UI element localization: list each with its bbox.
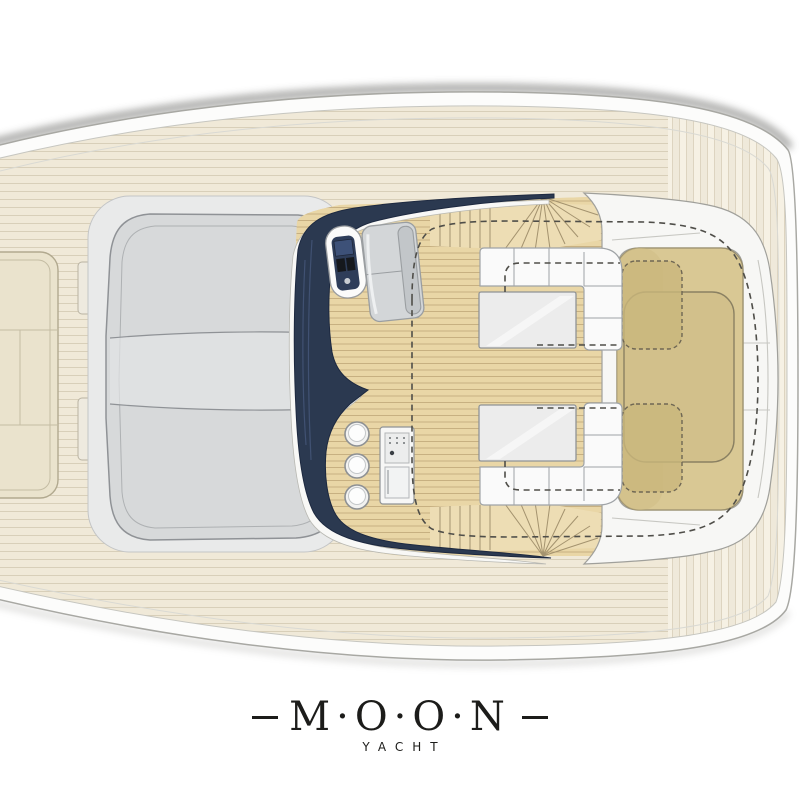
- brand-name: M·O·O·N: [289, 697, 511, 737]
- aft-sunpad-top-cushion: [622, 261, 682, 349]
- aft-sunpad-bottom-cushion: [622, 404, 682, 492]
- galley-unit: [380, 427, 414, 504]
- brand-dash-right: [522, 716, 548, 719]
- brand-logo: M·O·O·N YACHT: [0, 697, 800, 754]
- aft-sunpad: [617, 248, 743, 510]
- yacht-deck-plan: M·O·O·N YACHT: [0, 0, 800, 800]
- brand-dash-left: [252, 716, 278, 719]
- bow-sunpad: [0, 252, 58, 498]
- brand-subtitle: YACHT: [0, 740, 800, 754]
- bar-stools: [345, 422, 369, 509]
- galley-knob: [390, 451, 394, 455]
- chartplotter-screen: [334, 239, 354, 256]
- brand-row: M·O·O·N: [252, 697, 548, 737]
- deck-plan-illustration: [0, 0, 800, 800]
- helm-seat: [361, 221, 425, 322]
- stairs-bottom: [430, 502, 601, 556]
